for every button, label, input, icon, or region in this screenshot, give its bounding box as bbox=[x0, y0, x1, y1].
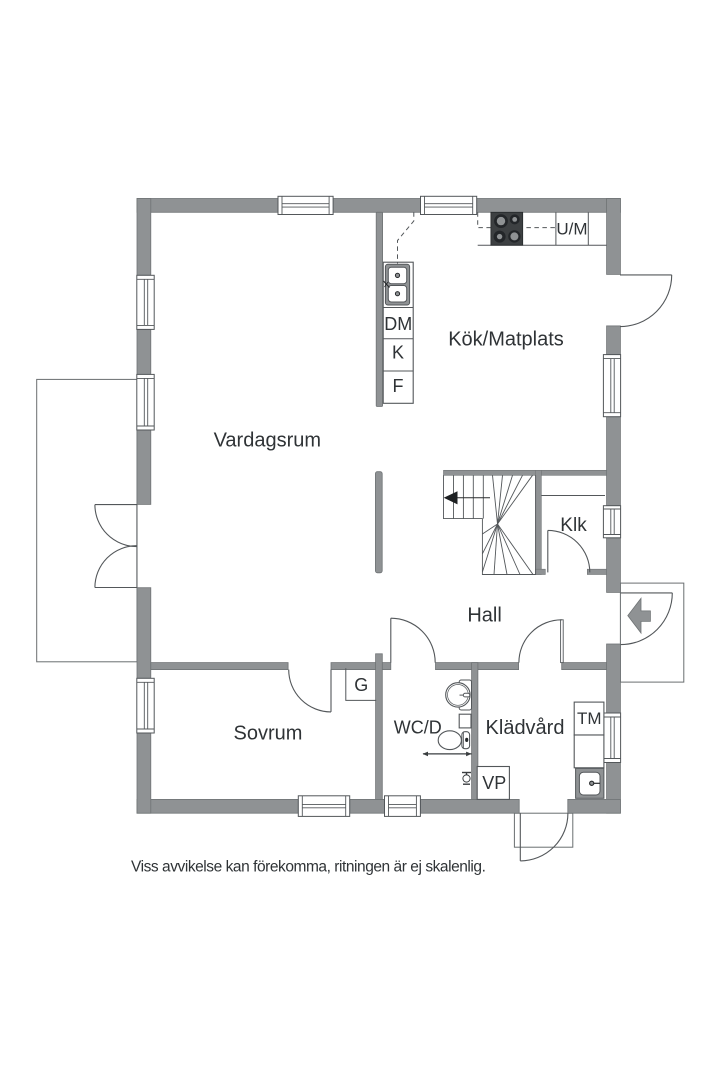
svg-text:Viss avvikelse kan förekomma,: Viss avvikelse kan förekomma, ritningen … bbox=[131, 859, 485, 876]
svg-text:VP: VP bbox=[482, 773, 506, 793]
svg-text:Klk: Klk bbox=[560, 515, 587, 536]
svg-text:G: G bbox=[354, 675, 368, 695]
svg-text:Hall: Hall bbox=[467, 605, 501, 627]
svg-text:Vardagsrum: Vardagsrum bbox=[214, 430, 321, 452]
svg-text:F: F bbox=[393, 376, 404, 396]
svg-text:TM: TM bbox=[577, 709, 602, 728]
svg-text:Klädvård: Klädvård bbox=[486, 717, 565, 739]
svg-text:Sovrum: Sovrum bbox=[234, 722, 303, 744]
svg-text:K: K bbox=[392, 343, 404, 363]
svg-text:Kök/Matplats: Kök/Matplats bbox=[448, 328, 564, 350]
svg-text:U/M: U/M bbox=[556, 220, 587, 239]
svg-text:DM: DM bbox=[384, 314, 412, 334]
svg-text:WC/D: WC/D bbox=[394, 717, 442, 737]
